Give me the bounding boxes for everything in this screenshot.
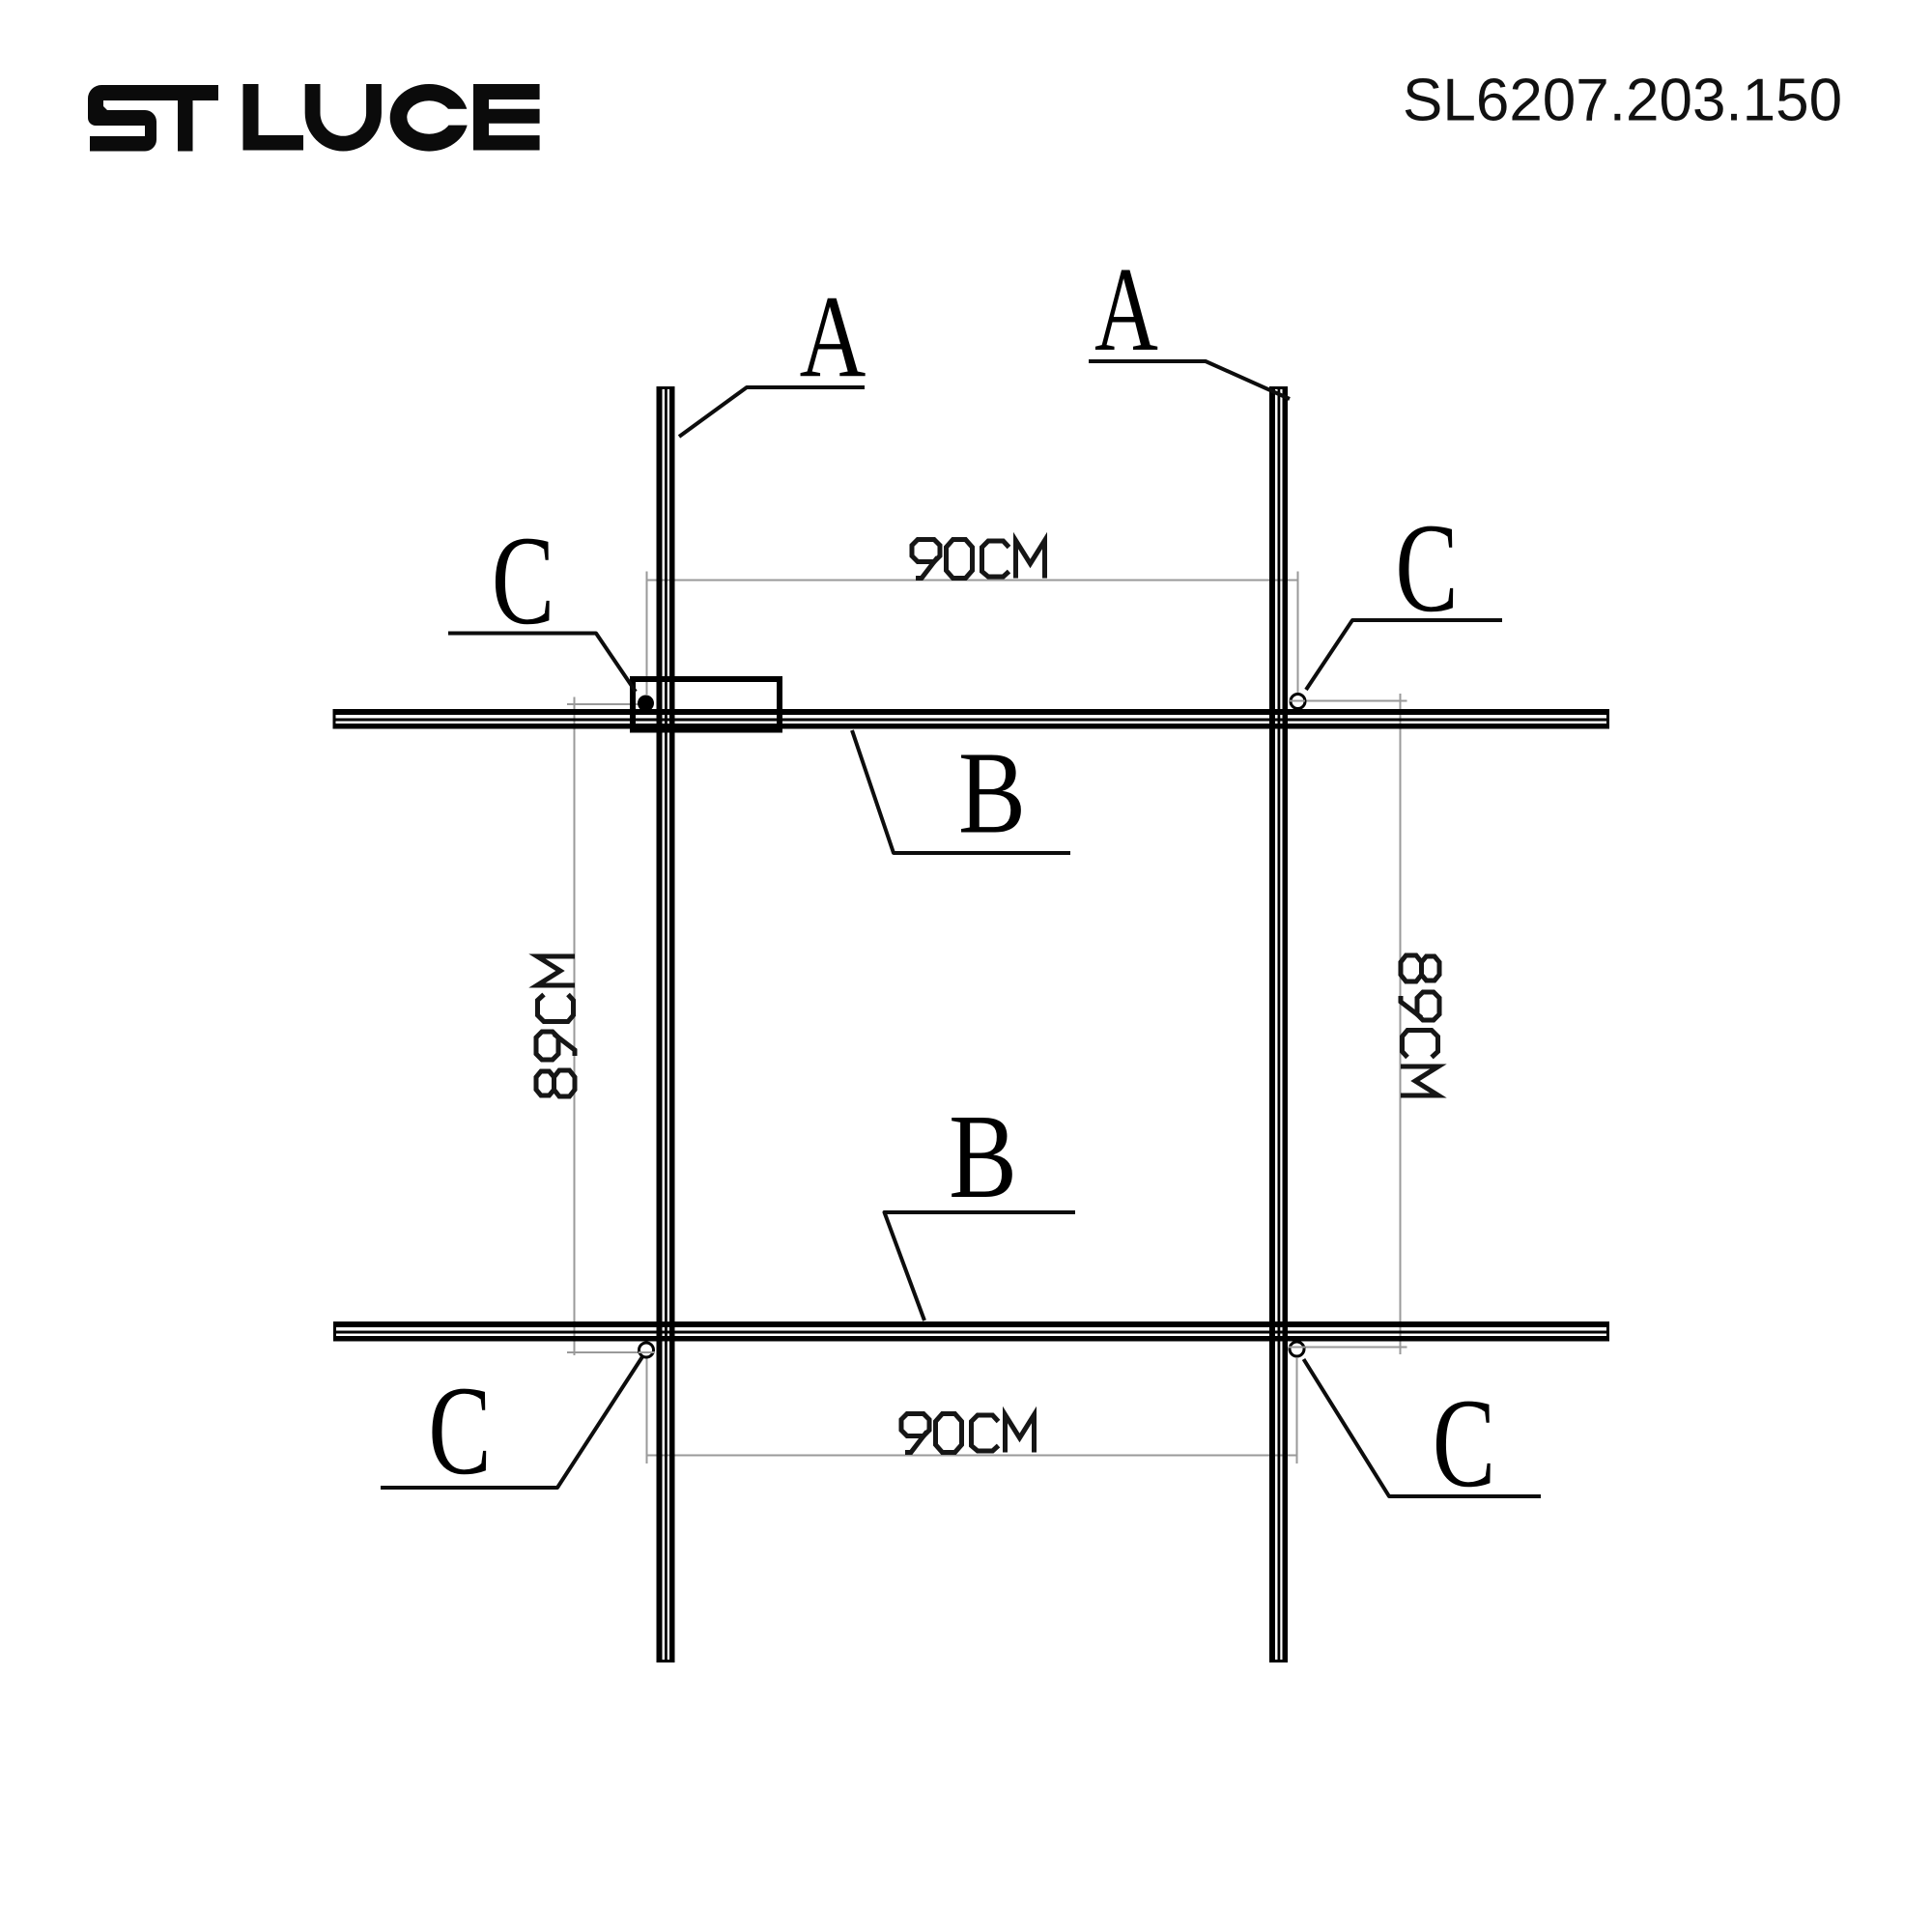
svg-text:C: C xyxy=(1395,498,1458,639)
svg-text:A: A xyxy=(800,271,867,402)
svg-text:B: B xyxy=(949,1091,1017,1224)
svg-text:B: B xyxy=(958,727,1026,858)
svg-text:C: C xyxy=(492,511,554,652)
svg-text:C: C xyxy=(428,1361,491,1502)
svg-text:C: C xyxy=(1433,1374,1495,1515)
svg-text:A: A xyxy=(1094,241,1158,376)
svg-text:SL6207.203.150: SL6207.203.150 xyxy=(1403,68,1842,134)
